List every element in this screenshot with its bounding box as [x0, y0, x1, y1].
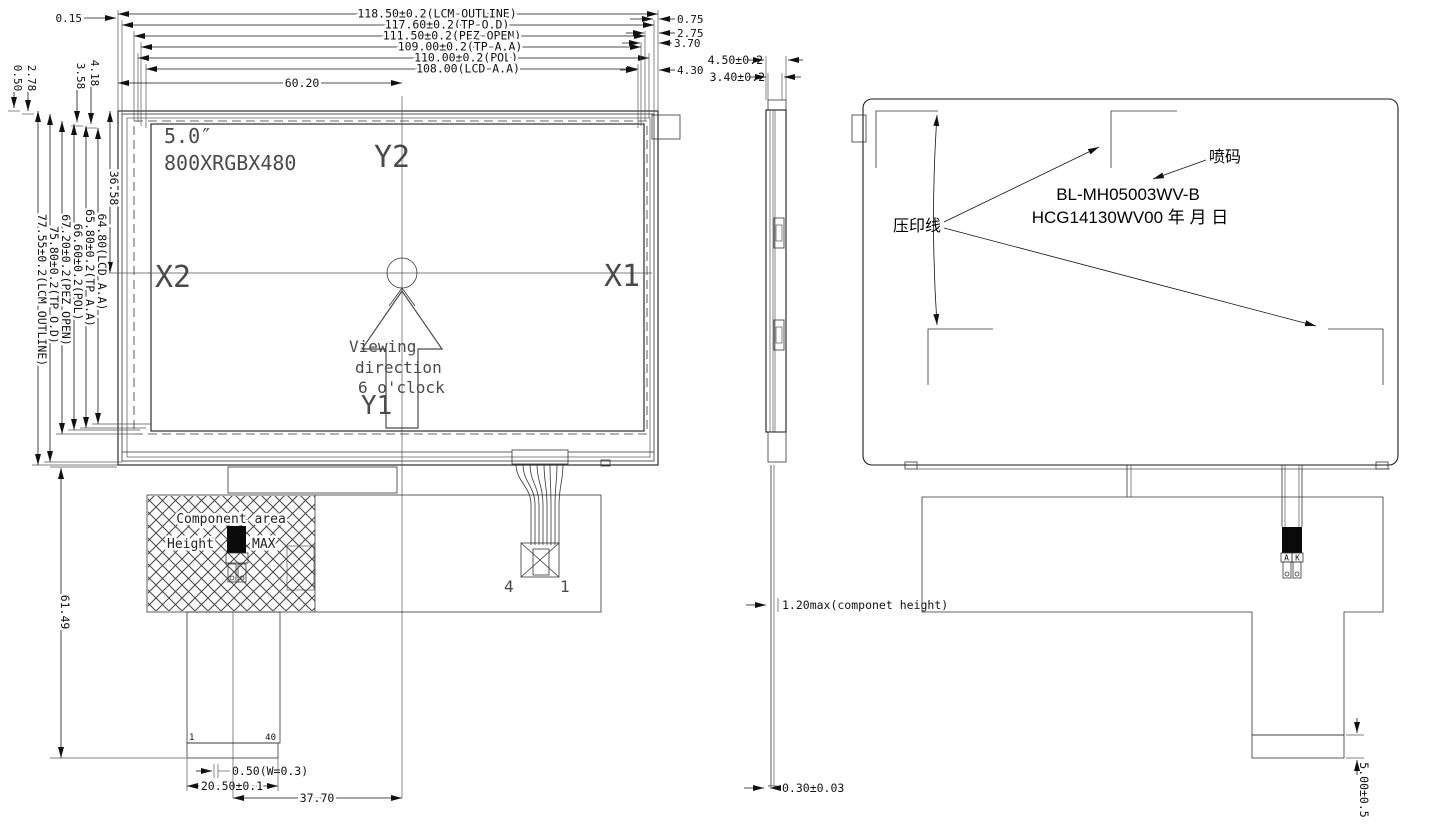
axis-label-x2: X2 — [155, 260, 191, 295]
side-view — [766, 100, 786, 786]
rear-fpc-stiffener-band — [1252, 735, 1344, 758]
axis-label-y2: Y2 — [374, 140, 410, 175]
viewing-text-2: direction — [355, 358, 442, 377]
side-top-cap — [768, 100, 786, 110]
side-body — [766, 110, 786, 432]
dim-offset-075: 0.75 — [677, 13, 704, 26]
dim-lcd-aa-width: 108.00(LCD A.A) — [416, 62, 520, 76]
component-area-text-2: Height — [167, 537, 214, 552]
stamp-line-label: 压印线 — [893, 216, 941, 235]
side-tab-lower — [774, 320, 784, 350]
tp-fpc-wires — [516, 464, 563, 545]
front-view: 5.0″ 800XRGBX480 Y2 X2 X1 Y1 Viewing dir… — [118, 96, 680, 798]
rear-side-hatch-square — [852, 115, 866, 142]
rear-fpc-foldout — [922, 497, 1383, 735]
panel-size-label: 5.0″ — [164, 124, 212, 148]
side-bottom-cap — [768, 432, 786, 462]
dim-lcm-height: 77.55±0.2(LCM OUTLINE) — [35, 214, 49, 366]
rear-body — [863, 99, 1398, 465]
backlight-connector-rear — [1282, 527, 1302, 553]
dim-pez-height: 67.20±0.2(PEZ OPEN) — [59, 214, 73, 346]
tp-pin-4-label: 4 — [504, 577, 514, 596]
dim-3658: 36.58 — [107, 171, 121, 206]
dim-lcd-aa-height: 64.80(LCD A.A) — [95, 214, 109, 311]
pin-number-last: 40 — [265, 733, 276, 743]
panel-resolution-label: 800XRGBX480 — [164, 151, 296, 175]
dim-6149: 61.49 — [58, 595, 72, 630]
dim-offset-050: 0.50 — [11, 65, 24, 92]
dim-3770: 37.70 — [300, 791, 335, 805]
stamp-bracket-top-right — [1111, 111, 1177, 168]
viewing-text-3: 6 o'clock — [358, 378, 445, 397]
corner-hatch-square — [652, 115, 680, 139]
component-area-text-3: MAX — [252, 537, 276, 552]
component-area-text-1: Component area — [176, 512, 286, 527]
dim-offset-358: 3.58 — [74, 63, 87, 90]
part-number-text: BL-MH05003WV-B — [1056, 185, 1200, 204]
engineering-drawing-page: 5.0″ 800XRGBX480 Y2 X2 X1 Y1 Viewing dir… — [0, 0, 1446, 828]
pin-strip-40 — [187, 743, 278, 758]
dim-pin-pitch: 0.50(W=0.3) — [232, 764, 308, 778]
dim-6020: 60.20 — [285, 76, 320, 90]
pin-number-first: 1 — [189, 733, 194, 743]
bonding-hatch-strip — [228, 467, 397, 493]
dim-offset-418: 4.18 — [88, 60, 101, 87]
main-fpc-tail — [187, 612, 280, 743]
stamp-bracket-bottom-left — [928, 329, 993, 385]
stamp-bracket-top-left — [876, 111, 938, 168]
rear-view: 压印线 喷码 BL-MH05003WV-B HCG14130WV00 年 月 日… — [852, 99, 1398, 758]
axis-label-x1: X1 — [604, 259, 640, 294]
dim-offset-278: 2.78 — [25, 65, 38, 92]
dim-connector-width: 20.50±0.1 — [201, 779, 263, 793]
side-tab-upper — [774, 218, 784, 248]
backlight-connector-front — [227, 526, 246, 553]
dim-tp-od-height: 75.80±0.2(TP O.D) — [47, 226, 61, 344]
side-dimensions: 4.50±0.2 3.40±0.2 1.20max(componet heigh… — [708, 53, 949, 795]
dim-band-height: 5.00±0.5 — [1357, 762, 1371, 817]
dim-offset-015: 0.15 — [56, 12, 83, 25]
stamp-bracket-bottom-right — [1328, 329, 1383, 385]
inkjet-label: 喷码 — [1209, 147, 1241, 166]
led-anode-label: A — [1284, 554, 1289, 563]
led-cathode-label: K — [1295, 554, 1300, 563]
dim-offset-430: 4.30 — [677, 64, 704, 77]
dim-pol-height: 66.60±0.2(POL) — [71, 224, 85, 321]
dim-tp-aa-height: 65.80±0.2(TP A.A) — [83, 209, 97, 327]
rear-dimensions: 5.00±0.5 — [1346, 718, 1371, 818]
viewing-text-1: Viewing — [349, 337, 416, 356]
dim-component-height: 1.20max(componet height) — [782, 598, 948, 612]
front-dimensions: 118.50±0.2(LCM OUTLINE) 117.60±0.2(TP O.… — [8, 7, 704, 806]
dim-thickness-tp: 3.40±0.2 — [710, 70, 765, 84]
code-line-text: HCG14130WV00 年 月 日 — [1032, 208, 1229, 227]
dim-thickness-total: 4.50±0.2 — [708, 53, 763, 67]
dim-film-thickness: 0.30±0.03 — [782, 781, 844, 795]
dim-offset-370: 3.70 — [674, 37, 701, 50]
lcm-outline-drawing: 5.0″ 800XRGBX480 Y2 X2 X1 Y1 Viewing dir… — [0, 0, 1446, 828]
tp-pin-1-label: 1 — [560, 577, 570, 596]
